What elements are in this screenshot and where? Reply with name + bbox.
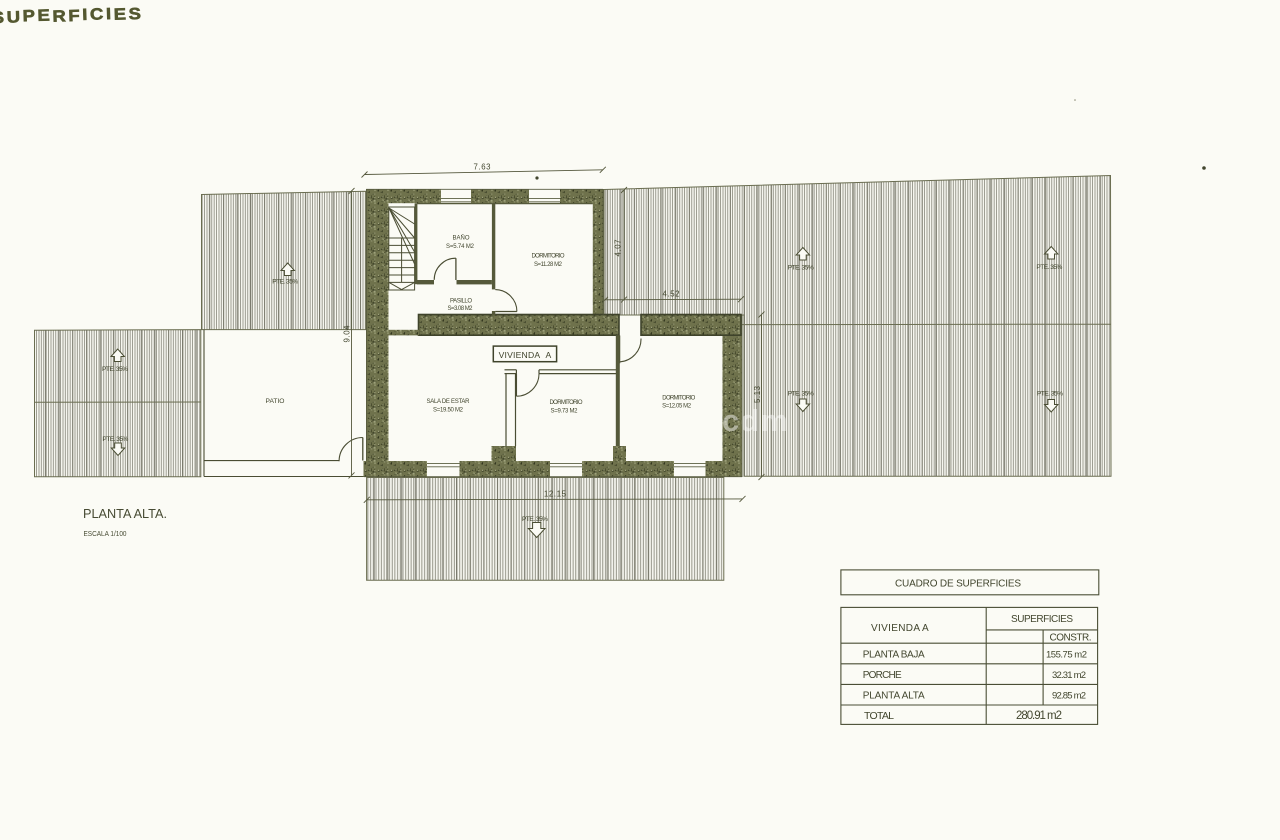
- svg-text:S=9.73 M2: S=9.73 M2: [551, 409, 579, 415]
- svg-text:PTE. 35%: PTE. 35%: [102, 436, 128, 443]
- svg-text:DORMITORIO: DORMITORIO: [550, 400, 583, 406]
- svg-text:PTE. 35%: PTE. 35%: [272, 278, 298, 285]
- svg-text:VIVIENDA: VIVIENDA: [871, 623, 920, 634]
- svg-text:DORMITORIO: DORMITORIO: [662, 396, 695, 402]
- svg-text:PATIO: PATIO: [266, 398, 285, 405]
- svg-text:9.04: 9.04: [343, 325, 352, 343]
- svg-text:CONSTR.: CONSTR.: [1050, 632, 1092, 643]
- svg-text:32.31 m2: 32.31 m2: [1052, 670, 1086, 681]
- svg-text:S=12.05 M2: S=12.05 M2: [662, 404, 692, 410]
- svg-text:SUPERFICIES: SUPERFICIES: [1011, 614, 1073, 625]
- svg-text:PTE. 35%: PTE. 35%: [522, 516, 548, 523]
- svg-text:S=11.28 M2: S=11.28 M2: [534, 262, 563, 268]
- svg-text:PTE. 35%: PTE. 35%: [788, 390, 814, 397]
- svg-text:155.75 m2: 155.75 m2: [1046, 649, 1087, 660]
- svg-text:280.91 m2: 280.91 m2: [1016, 710, 1062, 722]
- svg-text:TOTAL: TOTAL: [864, 710, 894, 722]
- svg-text:VIVIENDA A: VIVIENDA A: [499, 350, 552, 360]
- svg-text:4.07: 4.07: [614, 240, 623, 257]
- svg-text:92.85 m2: 92.85 m2: [1052, 690, 1086, 701]
- svg-text:PORCHE: PORCHE: [863, 670, 902, 681]
- svg-text:PTE. 35%: PTE. 35%: [1037, 391, 1063, 398]
- svg-text:5.13: 5.13: [753, 386, 762, 403]
- svg-text:PTE. 35%: PTE. 35%: [788, 264, 814, 271]
- svg-text:S=19.50 M2: S=19.50 M2: [433, 408, 464, 414]
- svg-text:7.63: 7.63: [474, 163, 491, 172]
- svg-text:S=5.74 M2: S=5.74 M2: [446, 244, 475, 250]
- svg-text:SALA DE ESTAR: SALA DE ESTAR: [427, 399, 471, 405]
- svg-text:PLANTA ALTA.: PLANTA ALTA.: [83, 506, 167, 521]
- svg-text:PTE. 35%: PTE. 35%: [1036, 264, 1062, 271]
- svg-text:cdm: cdm: [722, 403, 789, 438]
- svg-text:12.15: 12.15: [544, 490, 567, 499]
- svg-text:PLANTA BAJA: PLANTA BAJA: [863, 649, 925, 660]
- svg-text:PTE. 35%: PTE. 35%: [102, 366, 128, 373]
- svg-text:CUADRO DE SUPERFICIES: CUADRO DE SUPERFICIES: [895, 579, 1021, 590]
- svg-text:PLANTA ALTA: PLANTA ALTA: [863, 690, 925, 701]
- svg-text:ESCALA 1/100: ESCALA 1/100: [84, 529, 127, 538]
- svg-text:DORMITORIO: DORMITORIO: [532, 254, 565, 260]
- svg-text:4.52: 4.52: [663, 290, 680, 299]
- svg-text:A: A: [922, 623, 929, 634]
- svg-text:PASILLO: PASILLO: [450, 298, 472, 304]
- svg-text:S=3.08 M2: S=3.08 M2: [448, 306, 474, 312]
- svg-text:BAÑO: BAÑO: [453, 235, 470, 242]
